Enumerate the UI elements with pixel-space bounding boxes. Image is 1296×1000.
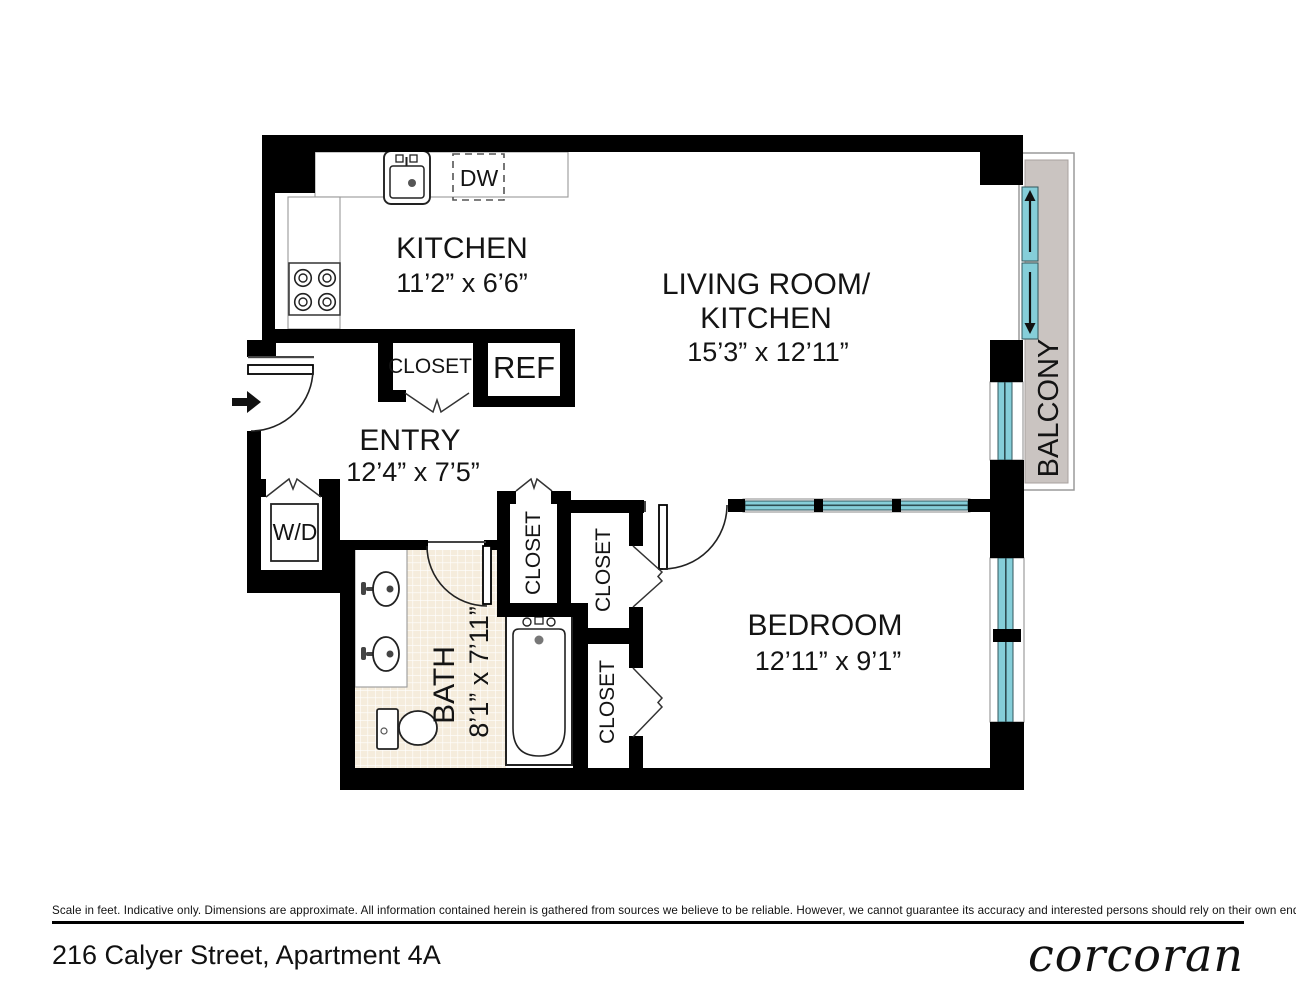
entry-arrow-icon [232, 391, 261, 413]
sliding-door [1022, 187, 1038, 339]
footer-divider [52, 921, 1244, 924]
bedroom-closet-lower-label: CLOSET [596, 660, 619, 744]
bath-label: BATH [428, 646, 461, 724]
balcony: BALCONY [1019, 153, 1074, 490]
bedroom-label: BEDROOM [747, 609, 902, 642]
refrigerator-label: REF [493, 350, 555, 385]
living-room-label-line2: KITCHEN [700, 302, 832, 335]
partition-window [743, 499, 970, 512]
kitchen-counter-top [315, 152, 568, 197]
stove-icon [289, 263, 340, 315]
washer-dryer-label: W/D [273, 519, 318, 545]
bedroom-closet-bifold-lower [633, 668, 662, 737]
washer-dryer-bifold [266, 479, 321, 497]
room-labels: KITCHEN 11’2” x 6’6” LIVING ROOM/ KITCHE… [346, 232, 902, 744]
kitchen-closet-bifold [405, 393, 469, 412]
disclaimer-text: Scale in feet. Indicative only. Dimensio… [52, 904, 1244, 917]
bathtub-icon [506, 616, 572, 765]
living-room-label-line1: LIVING ROOM/ [662, 268, 871, 301]
bedroom-closet-bifold-upper [633, 546, 662, 607]
kitchen-sink-icon [384, 151, 430, 204]
entry-dims: 12’4” x 7’5” [346, 457, 480, 487]
corcoran-logo: corcoran [1028, 928, 1244, 982]
bath-dims: 8’1” x 7’11” [464, 606, 494, 738]
kitchen-closet-label: CLOSET [388, 355, 472, 378]
bedroom-door [644, 501, 727, 569]
living-room-dims: 15’3” x 12’11” [687, 337, 849, 367]
entry-label: ENTRY [359, 424, 460, 457]
floor-plan: BALCONY DW [0, 0, 1296, 1000]
hall-closet-bifold [516, 479, 552, 491]
kitchen-dims: 11’2” x 6’6” [396, 268, 528, 298]
bedroom-dims: 12’11” x 9’1” [755, 646, 902, 676]
living-room-window [990, 382, 1023, 460]
dishwasher-label: DW [460, 165, 499, 191]
hall-closet-label: CLOSET [522, 511, 545, 595]
entry-door [232, 356, 314, 431]
address-text: 216 Calyer Street, Apartment 4A [52, 940, 441, 971]
bedroom-closet-upper-label: CLOSET [592, 528, 615, 612]
washer-dryer: W/D [271, 504, 318, 561]
balcony-label: BALCONY [1033, 339, 1065, 478]
floor-plan-page: BALCONY DW [0, 0, 1296, 1000]
refrigerator: REF [473, 329, 575, 407]
kitchen-label: KITCHEN [396, 232, 528, 265]
